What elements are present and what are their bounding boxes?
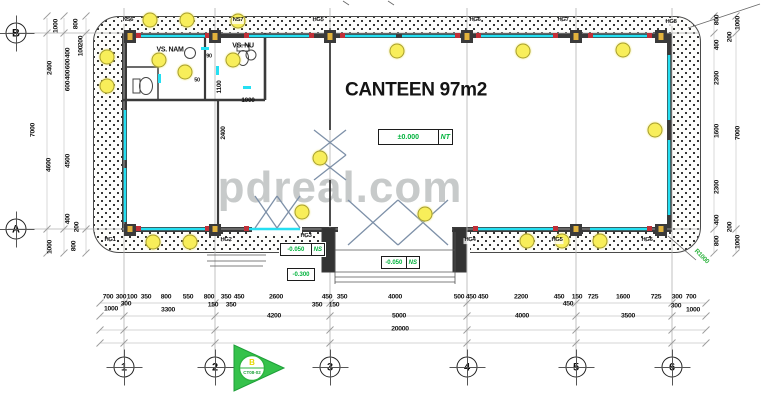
ceiling-light <box>390 44 405 59</box>
dim-label: 800 <box>72 241 79 251</box>
section-label: B <box>249 359 255 367</box>
section-marker: B CT08-02 <box>232 343 292 395</box>
dim-label: 5000 <box>392 314 406 321</box>
dim-label: 350 <box>221 295 231 302</box>
dim-label: 1600 <box>715 124 722 138</box>
dim-label: 500 <box>454 295 464 302</box>
ceiling-light <box>143 13 158 28</box>
window-tag: HG8 <box>664 20 677 26</box>
ceiling-light <box>520 234 535 249</box>
grid-bubble: 1 <box>114 357 135 378</box>
dim-label: 700 <box>103 295 113 302</box>
dim-label: 2200 <box>514 295 528 302</box>
ceiling-light <box>180 13 195 28</box>
floor-plan-canvas: pdreal.com <box>0 0 770 400</box>
ceiling-light <box>313 151 328 166</box>
grid-bubble: 2 <box>205 357 226 378</box>
dim-label: 150 <box>208 303 218 310</box>
dim-label: 4200 <box>267 314 281 321</box>
ceiling-light <box>418 207 433 222</box>
dim-label: 400 <box>715 215 722 225</box>
window-tag: HG3 <box>299 234 312 240</box>
elevation-marker: ±0.000NT <box>378 129 453 145</box>
dim-label: 20000 <box>391 327 408 334</box>
dim-label: 450 <box>466 295 476 302</box>
dim-label: 450 <box>234 295 244 302</box>
dim-label: 350 <box>226 303 236 310</box>
ceiling-light <box>100 50 115 65</box>
dim-label: 400 <box>715 40 722 50</box>
dim-label: 200 <box>728 222 735 232</box>
dim-label: 200 <box>79 36 86 46</box>
dim-label: 100 <box>79 46 86 56</box>
ceiling-light <box>226 53 241 68</box>
dim-label: 150 <box>329 303 339 310</box>
elevation-value: -0.300 <box>288 269 314 280</box>
ceiling-light <box>295 205 310 220</box>
elevation-value: ±0.000 <box>379 130 438 144</box>
window-tag: HG1 <box>103 238 116 244</box>
dim-label: 1000 <box>736 235 743 249</box>
dim-label: 2400 <box>48 61 55 75</box>
dim-label: 400 <box>66 48 73 58</box>
dim-label: 2300 <box>715 71 722 85</box>
dim-label: 800 <box>715 15 722 25</box>
window-tag: HG6 <box>468 18 481 24</box>
dim-label: 700 <box>686 295 696 302</box>
dim-label: 4500 <box>66 154 73 168</box>
elevation-marker: -0.300 <box>287 268 315 281</box>
dim-label: 1000 <box>48 240 55 254</box>
ceiling-light <box>146 235 161 250</box>
window-tag: NS6 <box>122 18 134 24</box>
dim-label: 600 <box>66 59 73 69</box>
ceiling-light <box>648 123 663 138</box>
elevation-marker: -0.050NS <box>280 243 325 256</box>
dim-label: 1000 <box>736 16 743 30</box>
window-tag: HG5 <box>311 18 324 24</box>
dim-label: 7000 <box>736 126 743 140</box>
text-label: 1000 <box>241 98 254 105</box>
dim-label: 600 <box>66 81 73 91</box>
section-code: CT08-02 <box>243 371 261 376</box>
dim-label: 300 <box>121 302 131 309</box>
dim-label: 300 <box>671 304 681 311</box>
ceiling-light <box>178 65 193 80</box>
dim-label: 4000 <box>388 295 402 302</box>
dim-label: 1000 <box>104 307 118 314</box>
dim-label: 800 <box>204 295 214 302</box>
window-tag: HG6 <box>640 238 653 244</box>
grid-bubble: 4 <box>457 357 478 378</box>
dim-label: 800 <box>74 19 81 29</box>
dim-label: 350 <box>337 295 347 302</box>
window-tag: HG5 <box>550 238 563 244</box>
window-tag: HG4 <box>463 238 476 244</box>
dim-label: 7000 <box>31 123 38 137</box>
dim-label: 3300 <box>161 308 175 315</box>
elevation-tag: NS <box>311 244 324 255</box>
ceiling-light <box>183 235 198 250</box>
dim-label: 4600 <box>47 158 54 172</box>
dim-label: 2300 <box>715 180 722 194</box>
window-tag: HG7 <box>556 18 569 24</box>
dim-label: 4000 <box>515 314 529 321</box>
dim-label: 3500 <box>621 314 635 321</box>
elevation-tag: NT <box>438 130 452 144</box>
ceiling-light <box>152 53 167 68</box>
dim-label: 400 <box>66 214 73 224</box>
dim-label: 200 <box>75 222 82 232</box>
text-label: 50 <box>194 78 200 84</box>
dim-label: 725 <box>588 295 598 302</box>
dim-label: 350 <box>312 303 322 310</box>
dim-label: 350 <box>141 295 151 302</box>
dim-label: 1000 <box>54 19 61 33</box>
grid-bubble: 5 <box>566 357 587 378</box>
grid-bubble: B <box>6 23 27 44</box>
text-label: 1100 <box>217 81 224 94</box>
dim-label: 800 <box>715 236 722 246</box>
ceiling-light <box>616 43 631 58</box>
grid-bubble: A <box>6 219 27 240</box>
dim-label: 150 <box>572 295 582 302</box>
text-label: 2400 <box>221 126 228 139</box>
dim-label: 300 <box>672 295 682 302</box>
room-title: CANTEEN 97m2 <box>345 81 487 100</box>
ceiling-light <box>593 234 608 249</box>
elevation-marker: -0.050NS <box>381 256 420 269</box>
room-label: VS. NAM <box>156 47 183 54</box>
dim-label: 400 <box>66 70 73 80</box>
dim-label: 2600 <box>269 295 283 302</box>
dim-label: 1000 <box>686 308 700 315</box>
window-tag: NS7 <box>232 18 244 24</box>
toilet-fixtures <box>133 45 256 95</box>
plan-linework <box>0 0 770 400</box>
dim-label: 800 <box>161 295 171 302</box>
room-label: VS. NU <box>232 43 254 50</box>
dim-label: 450 <box>563 302 573 309</box>
window-tag: HG2 <box>219 238 232 244</box>
text-label: 90 <box>206 54 212 60</box>
grid-bubble: 6 <box>662 357 683 378</box>
ceiling-light <box>516 44 531 59</box>
elevation-tag: NS <box>406 257 419 268</box>
dim-label: 725 <box>651 295 661 302</box>
walls <box>122 33 466 272</box>
dim-label: 550 <box>183 295 193 302</box>
dim-label: 450 <box>322 295 332 302</box>
dim-label: 200 <box>728 32 735 42</box>
dim-label: 1600 <box>616 295 630 302</box>
dim-label: 450 <box>478 295 488 302</box>
elevation-value: -0.050 <box>281 244 311 255</box>
elevation-value: -0.050 <box>382 257 406 268</box>
grid-bubble: 3 <box>320 357 341 378</box>
ceiling-light <box>100 79 115 94</box>
